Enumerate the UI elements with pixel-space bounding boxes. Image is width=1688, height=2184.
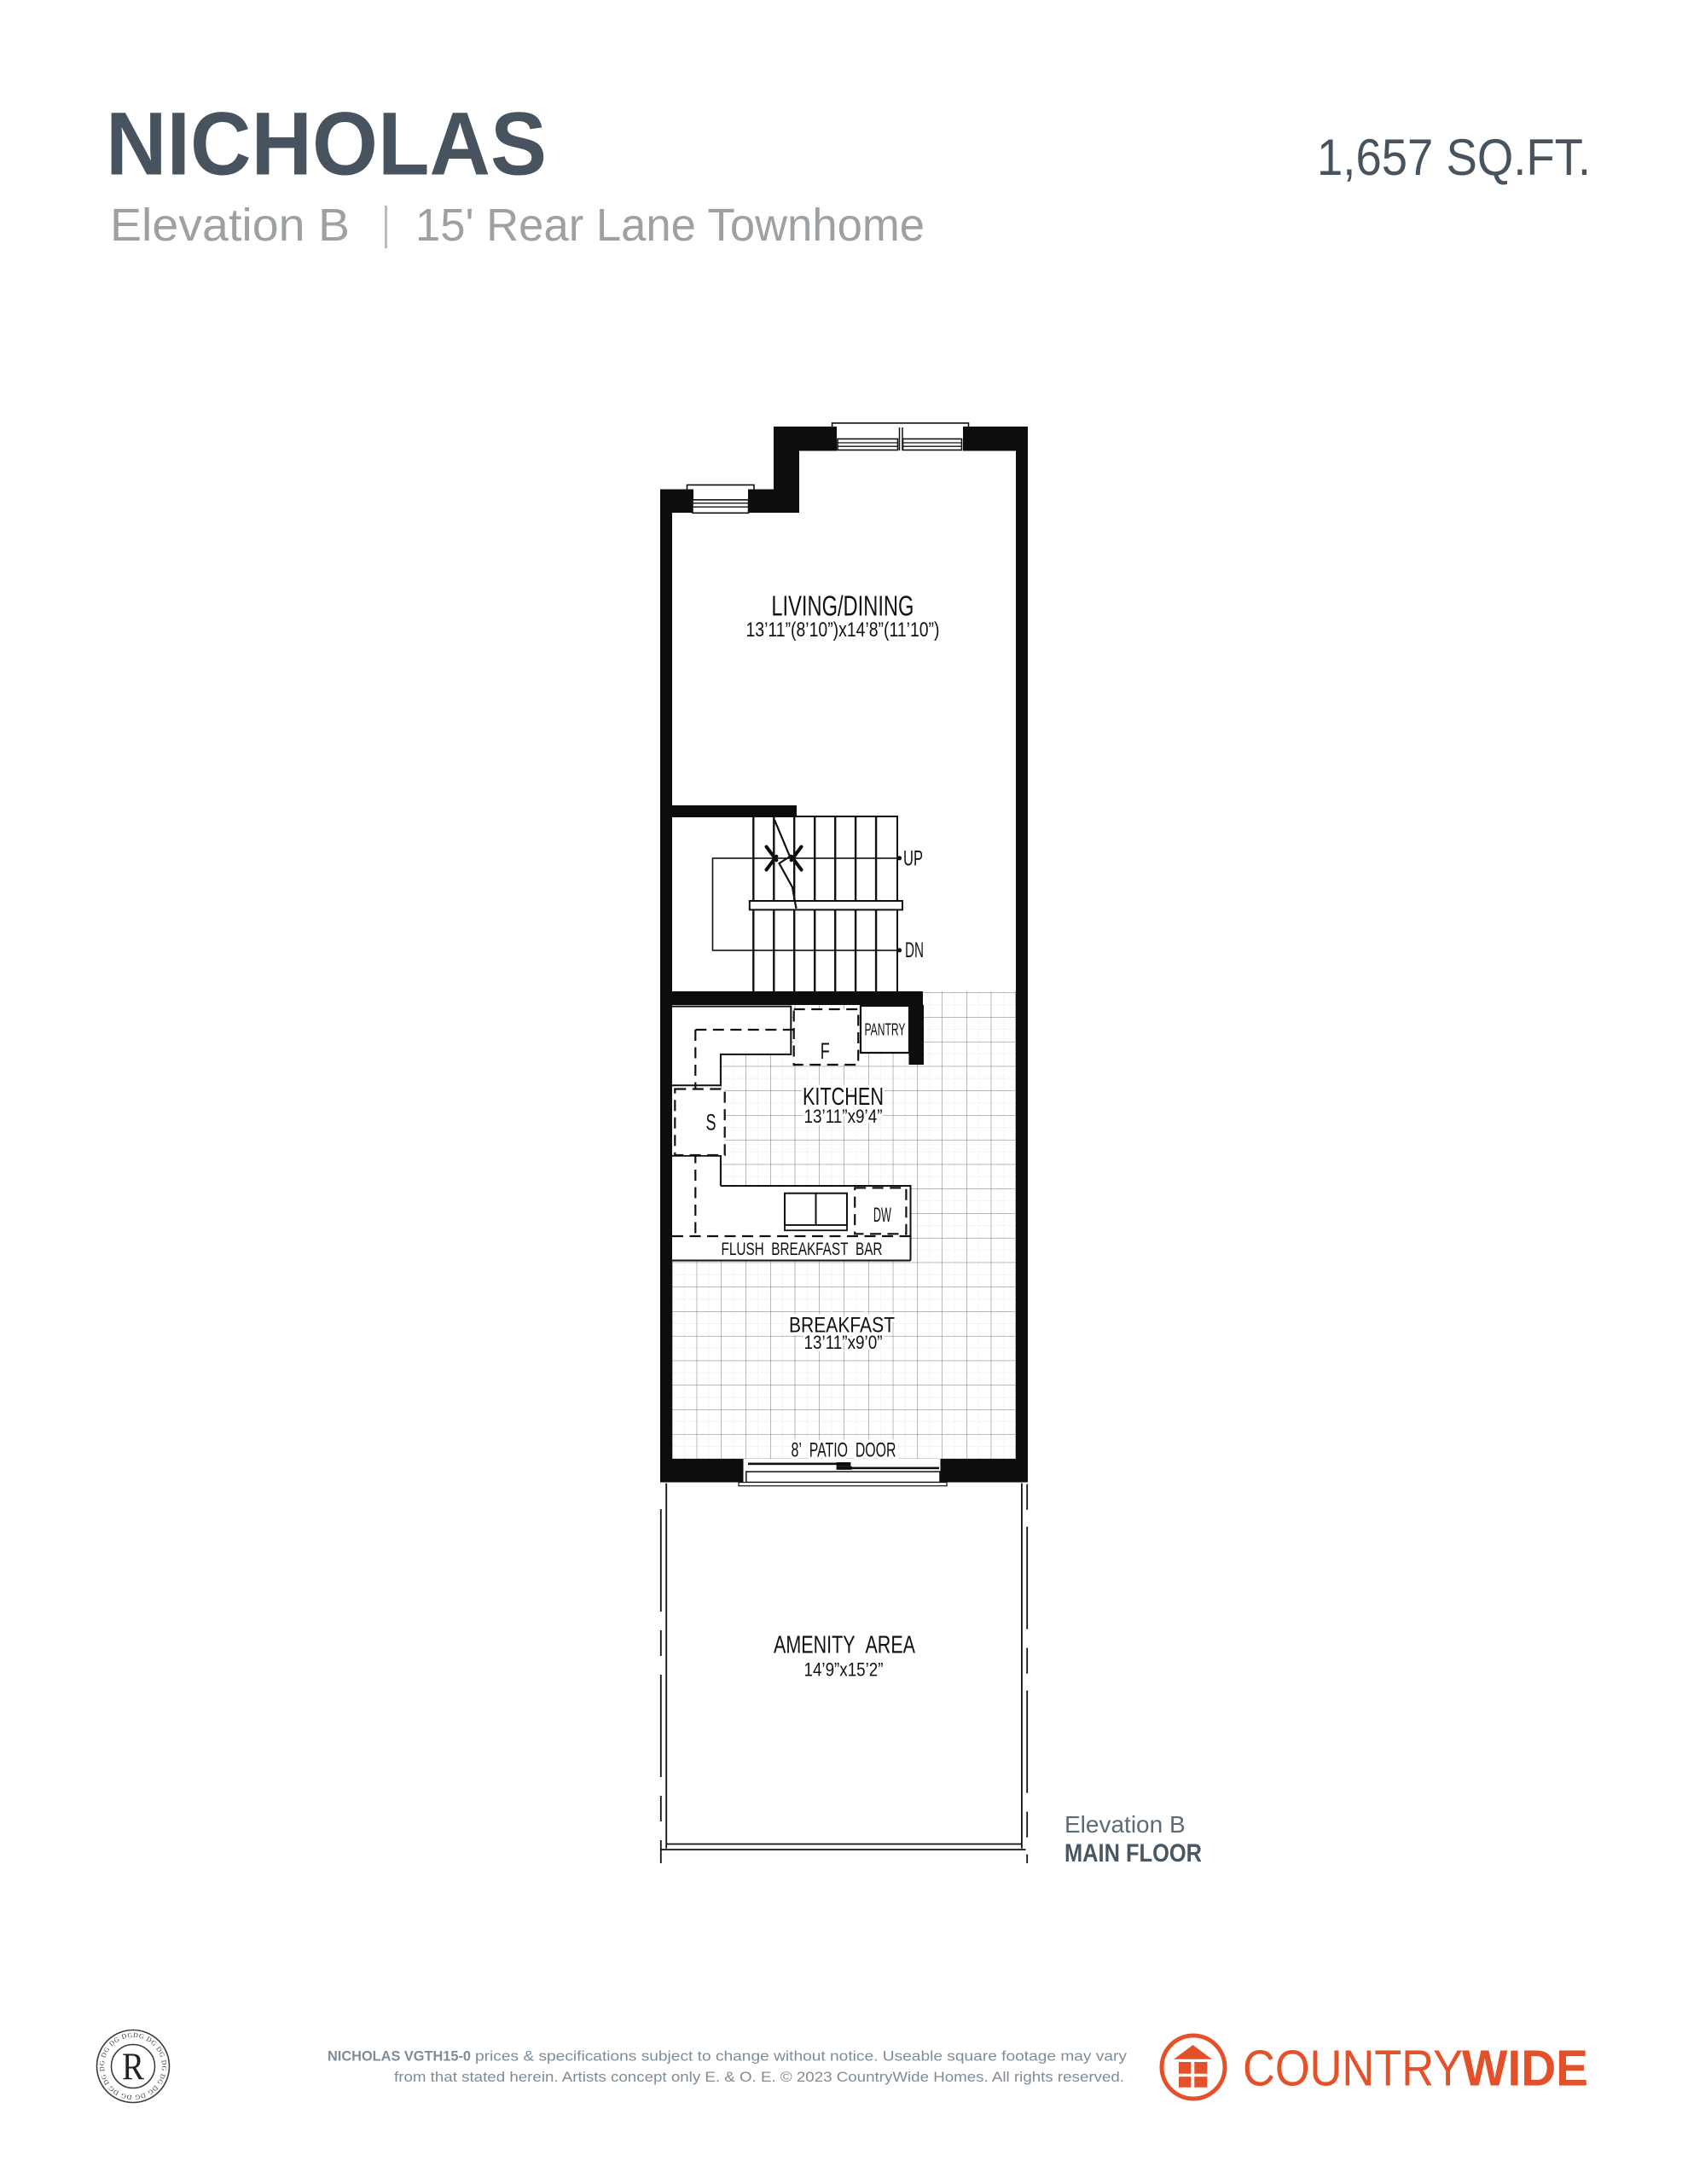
svg-text:15' Rear Lane Townhome: 15' Rear Lane Townhome [415,200,925,251]
svg-text:from that stated herein. Artis: from that stated herein. Artists concept… [394,2069,1124,2085]
svg-text:AMENITY AREA: AMENITY AREA [774,1632,915,1659]
svg-text:WIDE: WIDE [1462,2041,1588,2097]
svg-text:13’11”x9’4”: 13’11”x9’4” [804,1106,883,1127]
svg-text:13’11”(8’10”)x14’8”(11’10”): 13’11”(8’10”)x14’8”(11’10”) [746,619,940,642]
svg-text:Elevation B: Elevation B [110,200,350,251]
svg-text:13’11”x9’0”: 13’11”x9’0” [804,1332,883,1353]
svg-text:8’ PATIO DOOR: 8’ PATIO DOOR [792,1439,896,1462]
svg-text:1,657 SQ.FT.: 1,657 SQ.FT. [1317,129,1591,186]
svg-text:Elevation B: Elevation B [1064,1811,1186,1838]
svg-text:MAIN FLOOR: MAIN FLOOR [1064,1839,1202,1867]
svg-text:NICHOLAS VGTH15-0: NICHOLAS VGTH15-0 [328,2048,471,2065]
svg-text:DW: DW [873,1204,891,1227]
svg-text:PANTRY: PANTRY [865,1021,906,1040]
svg-text:NICHOLAS: NICHOLAS [106,95,547,195]
svg-text:COUNTRY: COUNTRY [1243,2041,1463,2097]
svg-text:R: R [122,2046,144,2088]
svg-text:S: S [706,1110,716,1136]
svg-text:UP: UP [903,847,923,871]
svg-text:LIVING/DINING: LIVING/DINING [771,590,914,622]
svg-text:FLUSH BREAKFAST BAR: FLUSH BREAKFAST BAR [722,1240,883,1259]
svg-text:14’9”x15’2”: 14’9”x15’2” [804,1659,884,1681]
svg-text:prices & specifications subjec: prices & specifications subject to chang… [475,2048,1128,2065]
svg-text:DN: DN [905,938,924,962]
svg-text:F: F [821,1038,830,1064]
